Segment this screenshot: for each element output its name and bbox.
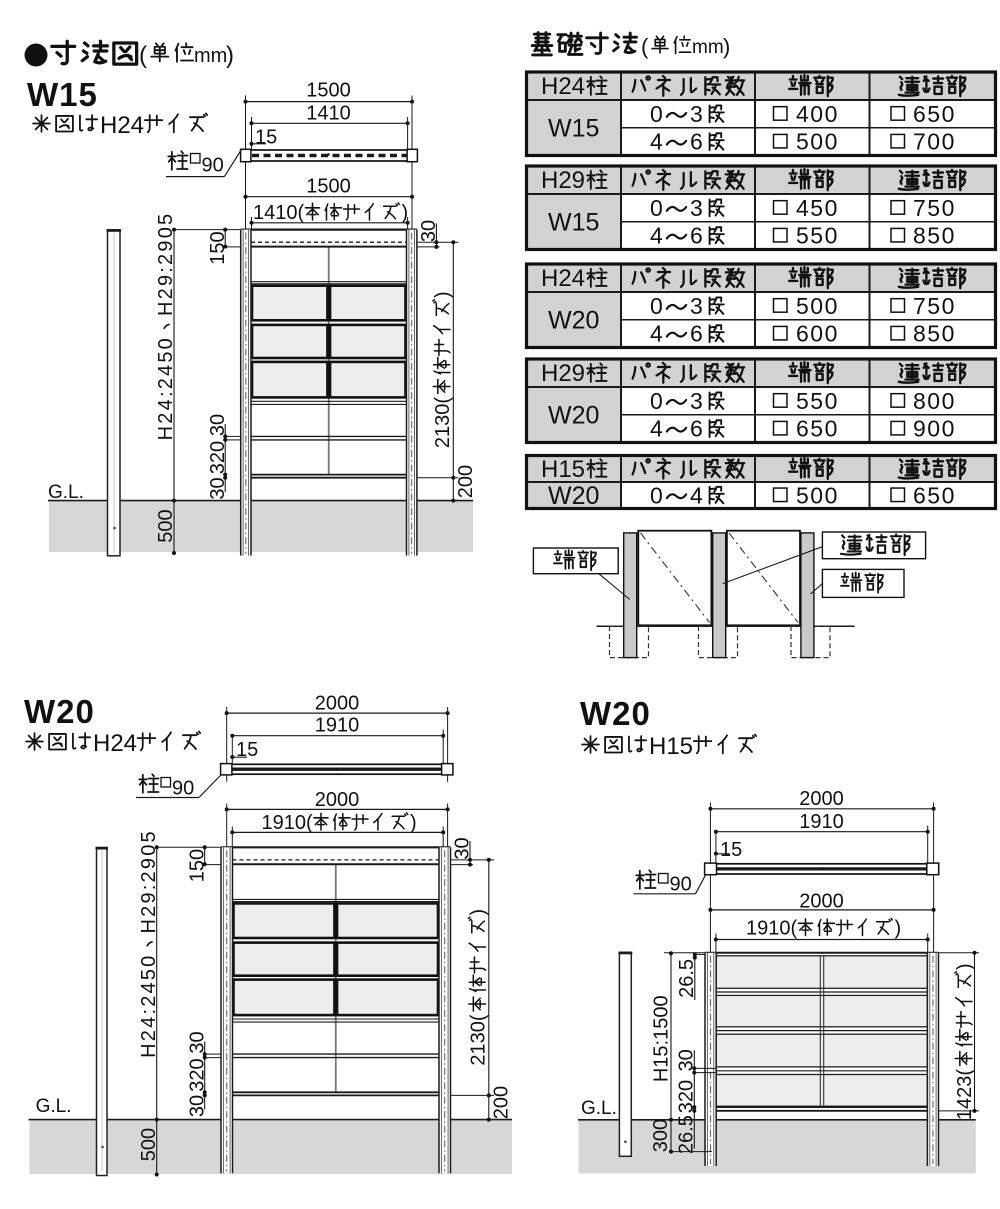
svg-text:450: 450 — [796, 195, 839, 221]
svg-text:H15: H15 — [649, 733, 693, 760]
svg-text:4: 4 — [650, 129, 663, 155]
svg-text:600: 600 — [796, 321, 839, 347]
svg-text:90: 90 — [670, 874, 692, 896]
svg-text:15: 15 — [720, 839, 742, 861]
svg-text:4: 4 — [650, 416, 663, 442]
svg-text:W15: W15 — [27, 76, 98, 113]
svg-text:H24: H24 — [100, 112, 144, 139]
svg-text:550: 550 — [796, 388, 839, 414]
svg-text:150: 150 — [187, 849, 209, 882]
svg-text:650: 650 — [913, 482, 956, 508]
svg-text:3: 3 — [690, 293, 703, 319]
svg-text:3: 3 — [690, 388, 703, 414]
svg-text:30: 30 — [207, 477, 229, 499]
svg-text:2130(: 2130( — [468, 1014, 490, 1065]
svg-text:500: 500 — [796, 482, 839, 508]
svg-text:(: ( — [641, 34, 649, 59]
svg-text:W20: W20 — [580, 695, 651, 732]
svg-text:mm: mm — [692, 37, 724, 58]
svg-text:0: 0 — [650, 388, 663, 414]
svg-text:2000: 2000 — [315, 693, 360, 715]
svg-text:650: 650 — [796, 416, 839, 442]
svg-text:W15: W15 — [548, 114, 599, 142]
svg-text:G.L.: G.L. — [581, 1098, 617, 1119]
svg-text:2000: 2000 — [799, 788, 844, 810]
svg-text:500: 500 — [155, 509, 177, 542]
svg-text:): ) — [226, 42, 234, 69]
svg-text:1910(: 1910( — [746, 918, 797, 940]
svg-text:H24: H24 — [541, 265, 585, 292]
svg-text:H15:1500: H15:1500 — [651, 995, 673, 1082]
svg-text:500: 500 — [138, 1128, 160, 1161]
svg-text:2130(: 2130( — [432, 397, 454, 448]
svg-text:750: 750 — [913, 195, 956, 221]
svg-text:1910(: 1910( — [262, 812, 313, 834]
svg-text:550: 550 — [796, 223, 839, 249]
svg-text:500: 500 — [796, 293, 839, 319]
svg-text:2000: 2000 — [315, 789, 360, 811]
svg-text:4: 4 — [690, 482, 703, 508]
svg-text:30: 30 — [676, 1049, 698, 1071]
svg-text:H29: H29 — [541, 167, 585, 194]
svg-text:): ) — [895, 918, 902, 940]
svg-text:): ) — [432, 291, 454, 298]
svg-text:H15: H15 — [541, 456, 585, 483]
svg-text:26.5: 26.5 — [676, 1115, 698, 1154]
svg-text:800: 800 — [913, 388, 956, 414]
svg-text:900: 900 — [913, 416, 956, 442]
svg-text:G.L.: G.L. — [36, 1096, 72, 1117]
svg-text:90: 90 — [172, 778, 194, 800]
svg-text:): ) — [954, 963, 976, 970]
svg-text:1500: 1500 — [306, 80, 351, 102]
svg-text:700: 700 — [913, 129, 956, 155]
svg-text:200: 200 — [455, 465, 477, 498]
svg-text:1423(: 1423( — [954, 1069, 976, 1120]
svg-text:W20: W20 — [24, 693, 95, 730]
svg-text:6: 6 — [690, 223, 703, 249]
svg-text:0: 0 — [650, 101, 663, 127]
svg-text:1910: 1910 — [315, 715, 360, 737]
svg-text:30: 30 — [187, 1095, 209, 1117]
svg-text:W15: W15 — [548, 208, 599, 236]
svg-text:750: 750 — [913, 293, 956, 319]
svg-text:26.5: 26.5 — [676, 959, 698, 998]
svg-text:850: 850 — [913, 321, 956, 347]
svg-text:W20: W20 — [548, 401, 599, 429]
svg-text:3: 3 — [690, 195, 703, 221]
svg-text:3: 3 — [690, 101, 703, 127]
svg-text:30: 30 — [187, 1031, 209, 1053]
svg-text:30: 30 — [418, 220, 440, 242]
svg-text:1410: 1410 — [306, 103, 351, 125]
svg-text:): ) — [723, 34, 730, 59]
svg-text:H24:2450: H24:2450 — [155, 336, 177, 440]
svg-text:W20: W20 — [548, 306, 599, 334]
svg-text:1500: 1500 — [306, 176, 351, 198]
svg-text:H29:2905: H29:2905 — [155, 212, 177, 316]
svg-text:500: 500 — [796, 129, 839, 155]
svg-text:6: 6 — [690, 416, 703, 442]
svg-text:1410(: 1410( — [253, 202, 304, 224]
svg-text:15: 15 — [255, 127, 277, 149]
svg-text:400: 400 — [796, 101, 839, 127]
svg-text:0: 0 — [650, 293, 663, 319]
svg-text:H24: H24 — [93, 730, 137, 757]
svg-text:0: 0 — [650, 195, 663, 221]
svg-text:90: 90 — [202, 155, 224, 177]
svg-text:300: 300 — [650, 1119, 672, 1152]
svg-text:30: 30 — [452, 837, 474, 859]
svg-text:W20: W20 — [548, 482, 599, 510]
svg-text:320: 320 — [207, 441, 229, 474]
svg-text:2000: 2000 — [799, 891, 844, 913]
svg-text:(: ( — [139, 42, 147, 69]
svg-text:): ) — [468, 909, 490, 916]
svg-text:H24:2450: H24:2450 — [138, 954, 160, 1058]
svg-text:): ) — [410, 812, 417, 834]
svg-text:4: 4 — [650, 321, 663, 347]
svg-text:H24: H24 — [541, 73, 585, 100]
svg-text:mm: mm — [194, 45, 227, 67]
svg-text:0: 0 — [650, 482, 663, 508]
svg-text:30: 30 — [207, 414, 229, 436]
svg-text:200: 200 — [491, 1086, 513, 1119]
svg-text:320: 320 — [187, 1058, 209, 1091]
svg-text:6: 6 — [690, 321, 703, 347]
svg-text:320: 320 — [676, 1080, 698, 1113]
svg-text:150: 150 — [207, 231, 229, 264]
svg-text:1910: 1910 — [799, 811, 844, 833]
svg-text:H29:2905: H29:2905 — [138, 829, 160, 933]
svg-text:H29: H29 — [541, 360, 585, 387]
svg-text:4: 4 — [650, 223, 663, 249]
svg-text:650: 650 — [913, 101, 956, 127]
svg-text:6: 6 — [690, 129, 703, 155]
svg-text:850: 850 — [913, 223, 956, 249]
